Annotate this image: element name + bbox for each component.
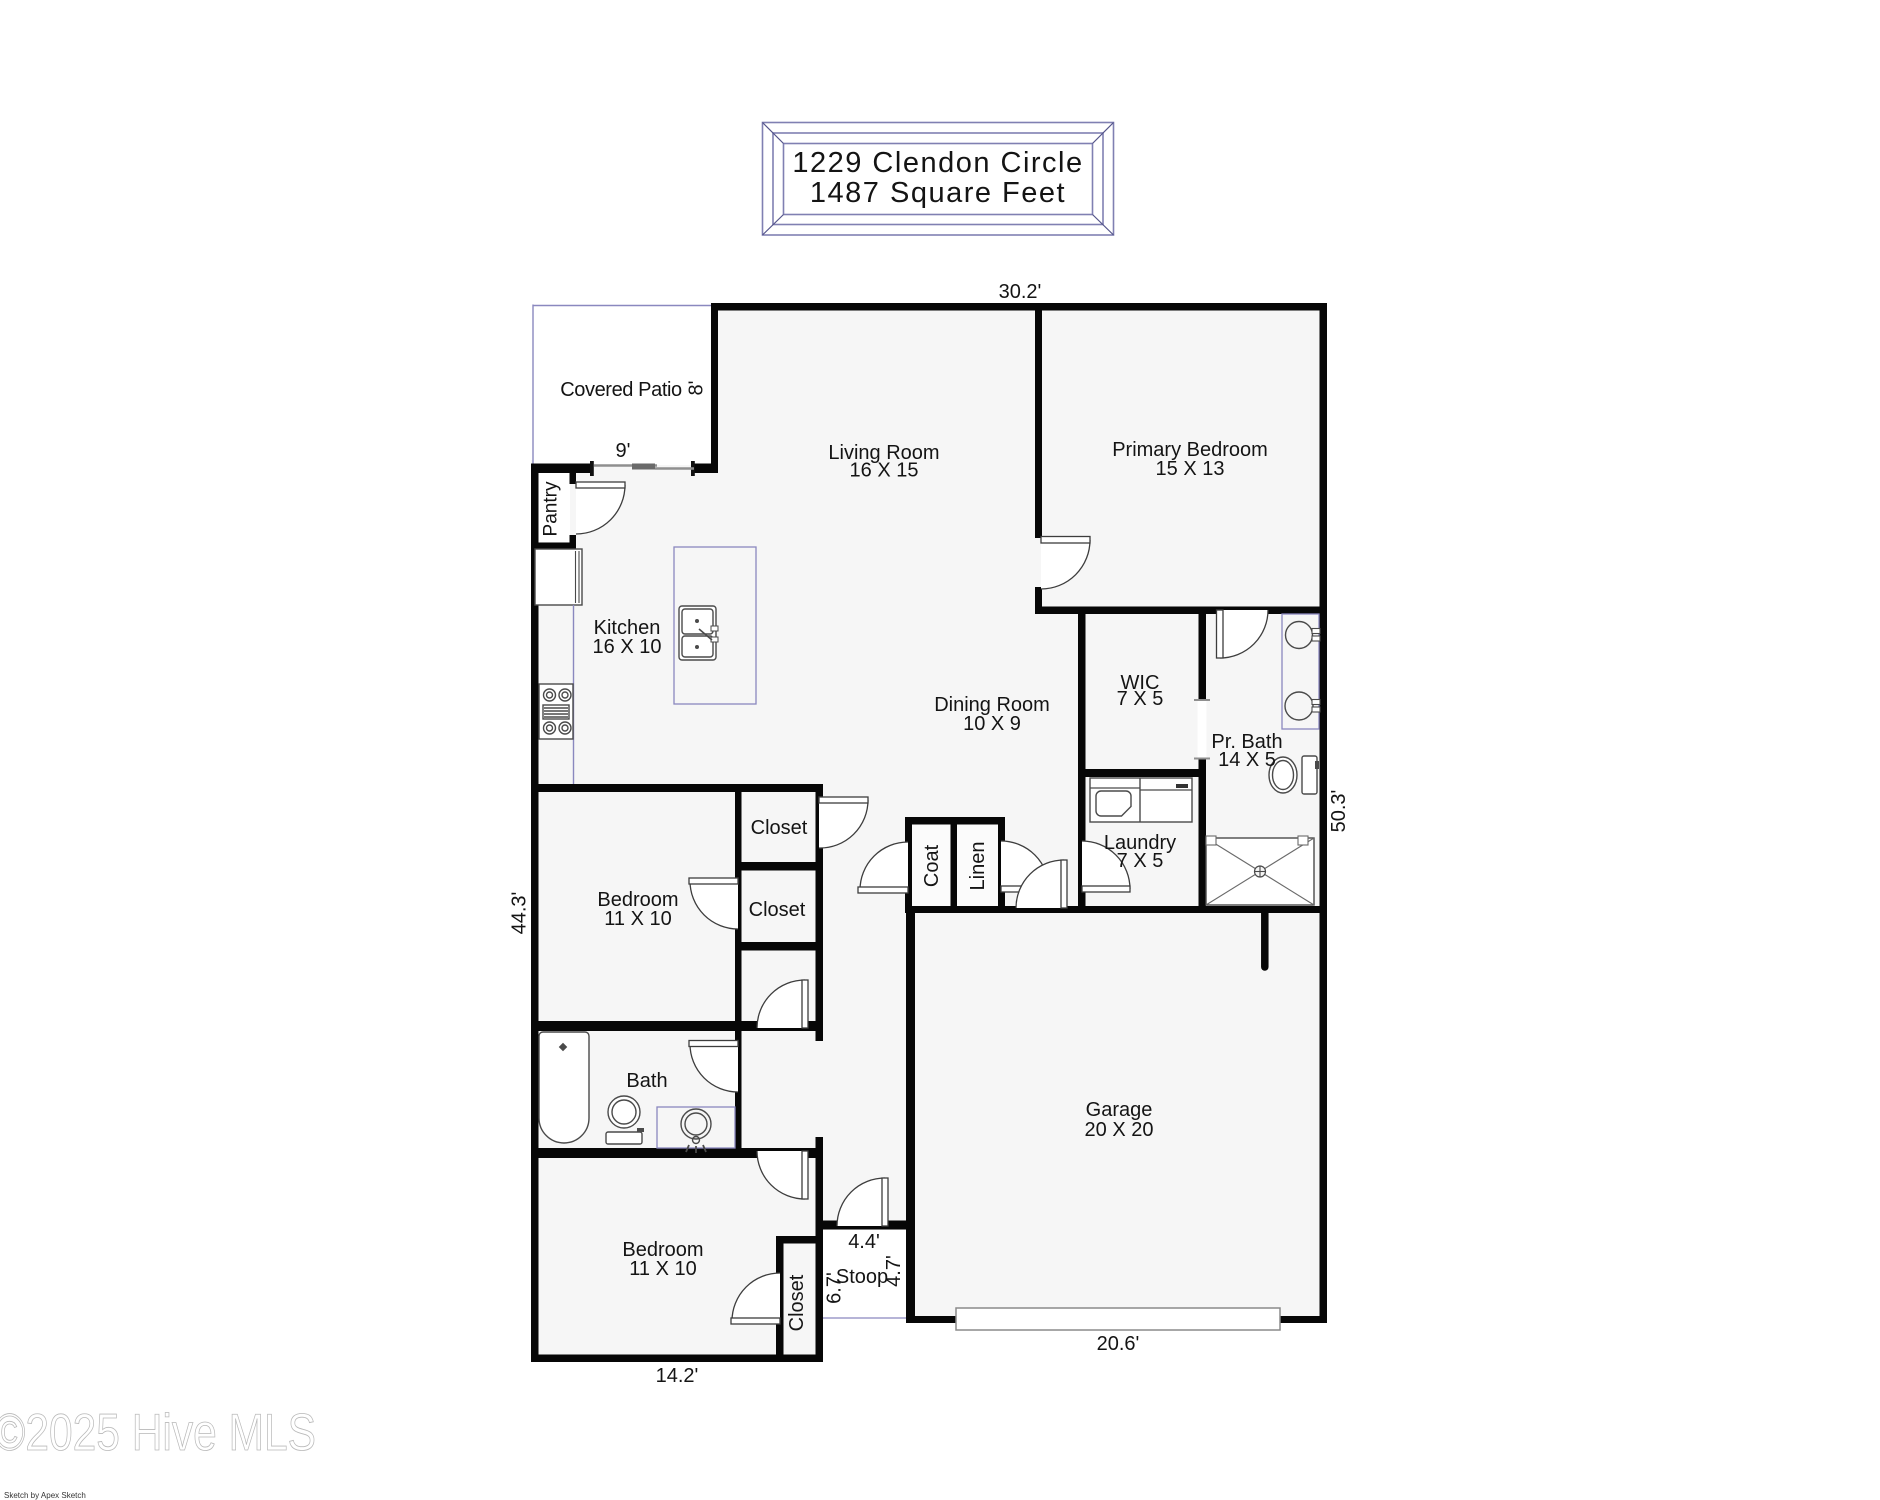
- svg-text:6.7': 6.7': [824, 1272, 846, 1304]
- svg-text:16 X 15: 16 X 15: [850, 460, 919, 482]
- svg-text:7 X 5: 7 X 5: [1117, 850, 1164, 872]
- svg-text:20.6': 20.6': [1097, 1333, 1140, 1355]
- svg-text:8': 8': [686, 381, 708, 396]
- svg-text:1229 Clendon Circle: 1229 Clendon Circle: [792, 147, 1083, 179]
- svg-text:4.7': 4.7': [883, 1255, 905, 1287]
- svg-text:©2025 Hive MLS: ©2025 Hive MLS: [0, 1404, 316, 1462]
- svg-text:Covered Patio: Covered Patio: [560, 379, 682, 401]
- svg-text:Linen: Linen: [967, 842, 989, 891]
- svg-text:Sketch by Apex Sketch: Sketch by Apex Sketch: [4, 1491, 86, 1500]
- svg-text:1487 Square Feet: 1487 Square Feet: [810, 177, 1066, 209]
- svg-text:30.2': 30.2': [999, 281, 1042, 303]
- svg-text:Closet: Closet: [786, 1274, 808, 1331]
- svg-text:Pantry: Pantry: [541, 481, 562, 536]
- svg-text:14 X 5: 14 X 5: [1218, 749, 1276, 771]
- svg-text:15 X 13: 15 X 13: [1156, 458, 1225, 480]
- svg-text:Garage: Garage: [1086, 1099, 1153, 1121]
- svg-text:50.3': 50.3': [1328, 790, 1350, 833]
- svg-text:Closet: Closet: [751, 817, 808, 839]
- svg-text:7 X 5: 7 X 5: [1117, 688, 1164, 710]
- svg-text:Coat: Coat: [921, 844, 943, 887]
- svg-text:9': 9': [616, 440, 631, 462]
- svg-text:44.3': 44.3': [509, 892, 531, 935]
- svg-text:10 X 9: 10 X 9: [963, 713, 1021, 735]
- svg-text:Closet: Closet: [749, 899, 806, 921]
- svg-text:20 X 20: 20 X 20: [1085, 1119, 1154, 1141]
- svg-text:14.2': 14.2': [656, 1365, 699, 1387]
- svg-text:11 X 10: 11 X 10: [604, 908, 671, 930]
- svg-text:4.4': 4.4': [848, 1231, 880, 1253]
- svg-text:11 X 10: 11 X 10: [629, 1258, 696, 1280]
- svg-text:Bath: Bath: [626, 1070, 667, 1092]
- svg-text:16 X 10: 16 X 10: [593, 636, 662, 658]
